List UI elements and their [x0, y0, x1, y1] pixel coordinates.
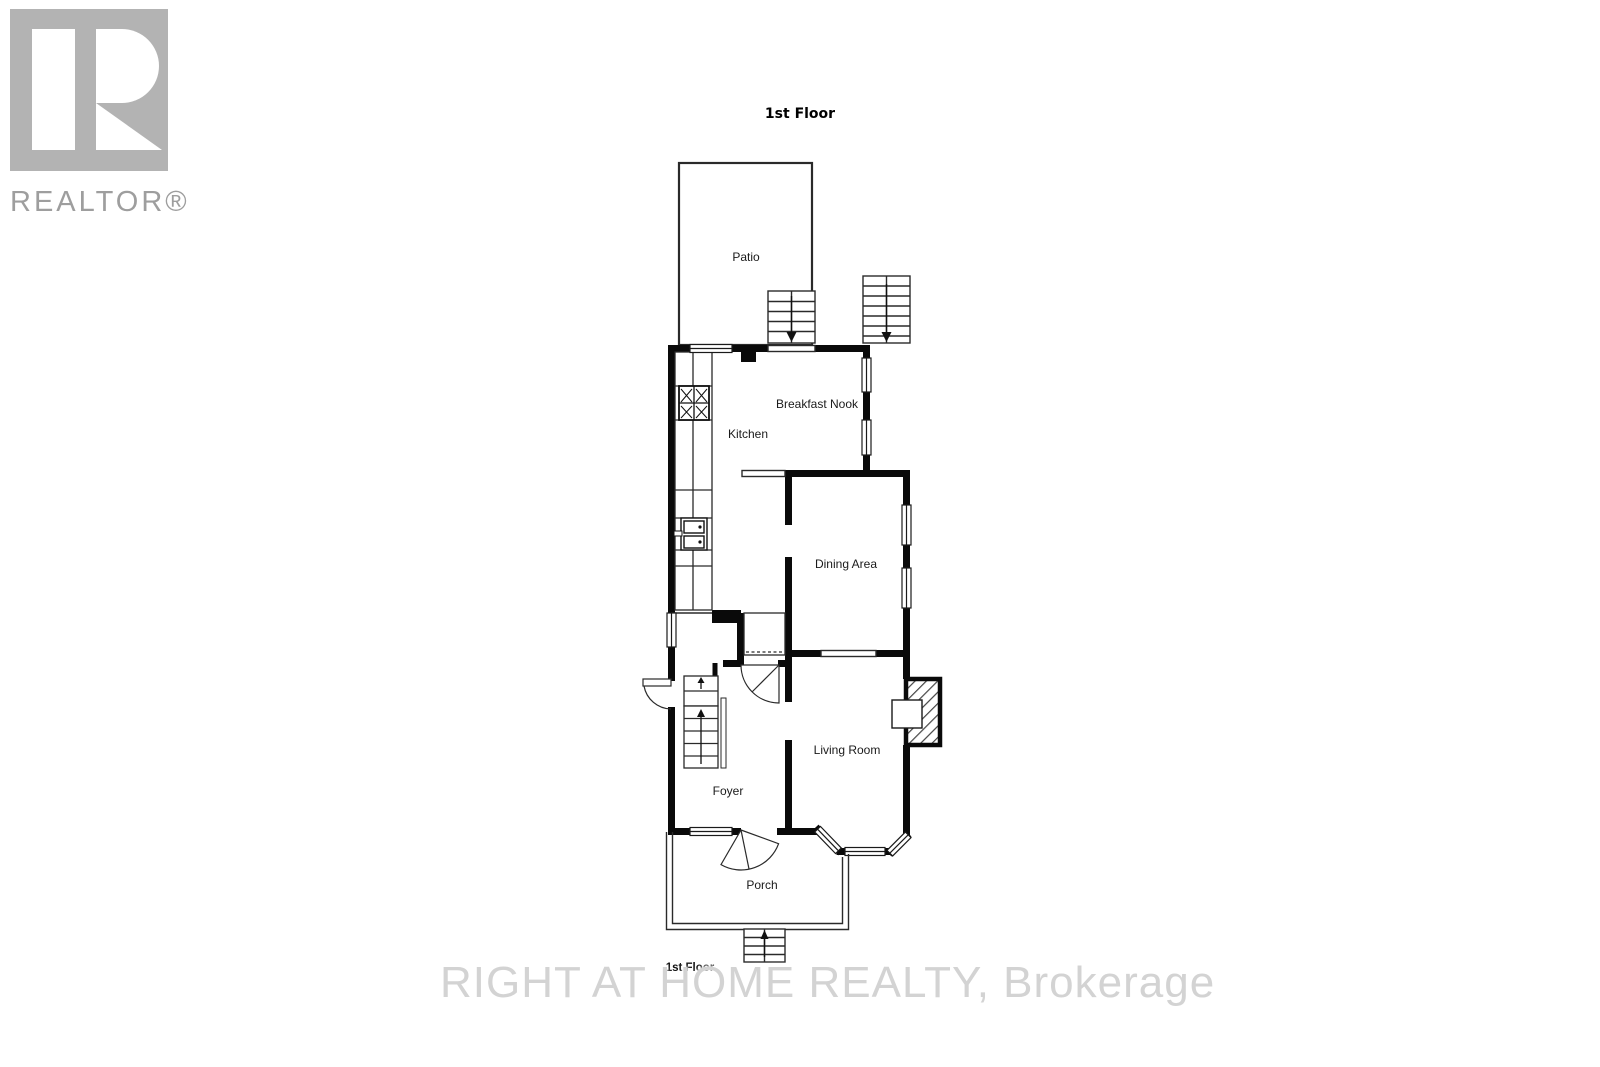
- window-nook-1: [862, 358, 871, 392]
- page: { "logo": { "brand": "REALTOR®" }, "head…: [0, 0, 1600, 1067]
- room-label-porch: Porch: [746, 878, 777, 892]
- patio-stairs-icon: [768, 291, 815, 343]
- window-bay-right: [887, 832, 911, 856]
- window-top: [690, 345, 732, 353]
- fireplace-icon: [892, 679, 940, 745]
- hall-door-arc: [741, 665, 779, 703]
- window-foyer-front: [690, 828, 732, 836]
- window-nook-2: [862, 420, 871, 455]
- window-bay-left: [815, 826, 842, 853]
- window-bay-bottom: [845, 848, 885, 856]
- side-stairs-icon: [863, 276, 910, 343]
- window-hall-left: [667, 613, 676, 647]
- closet: [744, 613, 785, 655]
- window-dining-2: [902, 568, 911, 608]
- foyer-stairs-icon: [684, 676, 726, 768]
- floorplan-drawing: Patio Breakfast Nook Kitchen Dining Area…: [0, 0, 1600, 1067]
- window-dining-1: [902, 505, 911, 545]
- side-door-arc: [643, 679, 671, 709]
- room-label-breakfast-nook: Breakfast Nook: [776, 397, 859, 411]
- room-label-foyer: Foyer: [713, 784, 744, 798]
- brokerage-watermark: RIGHT AT HOME REALTY, Brokerage: [440, 958, 1120, 1008]
- room-label-patio: Patio: [732, 250, 760, 264]
- room-label-dining: Dining Area: [815, 557, 877, 571]
- room-label-living: Living Room: [814, 743, 881, 757]
- stove-icon: [679, 386, 709, 420]
- room-label-kitchen: Kitchen: [728, 427, 768, 441]
